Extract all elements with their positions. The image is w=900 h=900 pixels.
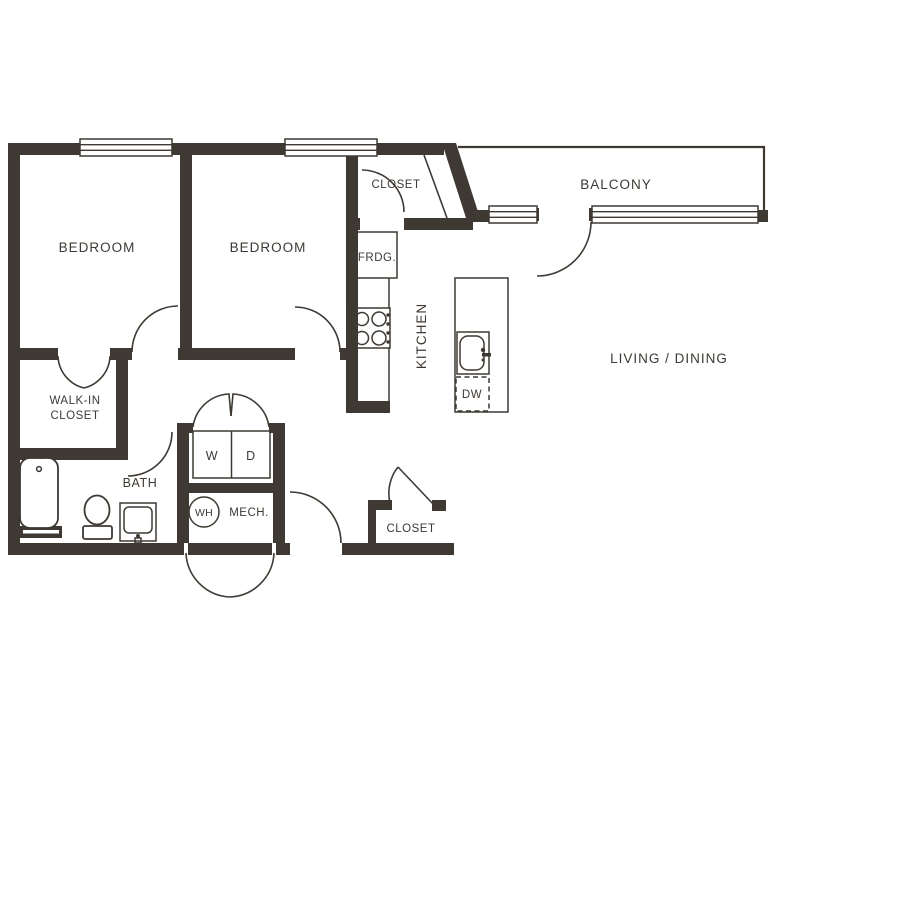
floor-plan: BEDROOM WALK-IN CLOSET BATH BEDROOM BEDR… [0, 0, 900, 900]
closet-angled-line [424, 155, 447, 218]
closet-top-label: CLOSET [371, 179, 420, 191]
living-dining-label: LIVING / DINING [610, 351, 728, 366]
mech-label: MECH. [229, 507, 269, 519]
kitchen-label: KITCHEN [414, 303, 429, 369]
bedroom2-label: BEDROOM [230, 240, 307, 255]
walk-in-closet1-label-line2: CLOSET [50, 410, 99, 422]
closet-mid-label: CLOSET [386, 523, 435, 535]
fridge-label: FRDG. [358, 252, 396, 264]
balcony-label: BALCONY [580, 177, 652, 192]
floor-plan-page: BEDROOM WALK-IN CLOSET BATH BEDROOM BEDR… [0, 0, 900, 900]
bathroom-sink [120, 503, 156, 543]
bedroom1-label: BEDROOM [59, 240, 136, 255]
dishwasher-label: DW [462, 389, 482, 401]
tub-ledge-slit [23, 530, 59, 534]
bath1-label: BATH [123, 476, 158, 490]
dryer-label: D [246, 449, 256, 463]
bathtub [20, 449, 58, 528]
washer-label: W [206, 449, 218, 463]
washer-dryer [193, 431, 270, 478]
toilet [83, 496, 112, 540]
walk-in-closet1-label-line1: WALK-IN [50, 395, 101, 407]
water-heater-label: WH [195, 507, 213, 519]
